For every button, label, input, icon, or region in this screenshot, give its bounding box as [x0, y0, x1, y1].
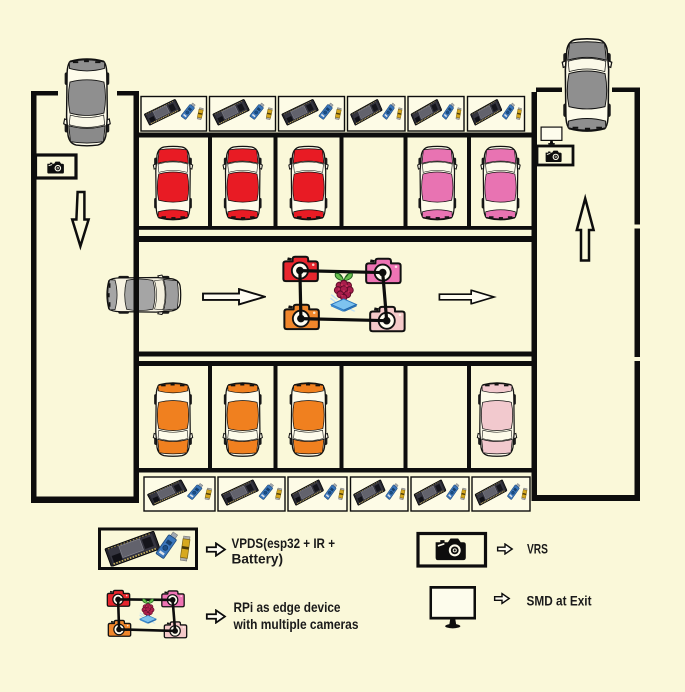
svg-text:Battery): Battery)	[232, 551, 284, 567]
svg-text:VRS: VRS	[527, 541, 548, 557]
svg-text:VPDS(esp32 + IR +: VPDS(esp32 + IR +	[232, 535, 336, 551]
svg-text:SMD at Exit: SMD at Exit	[527, 593, 592, 609]
svg-text:RPi as edge device: RPi as edge device	[234, 599, 341, 615]
svg-text:with multiple cameras: with multiple cameras	[233, 616, 359, 632]
